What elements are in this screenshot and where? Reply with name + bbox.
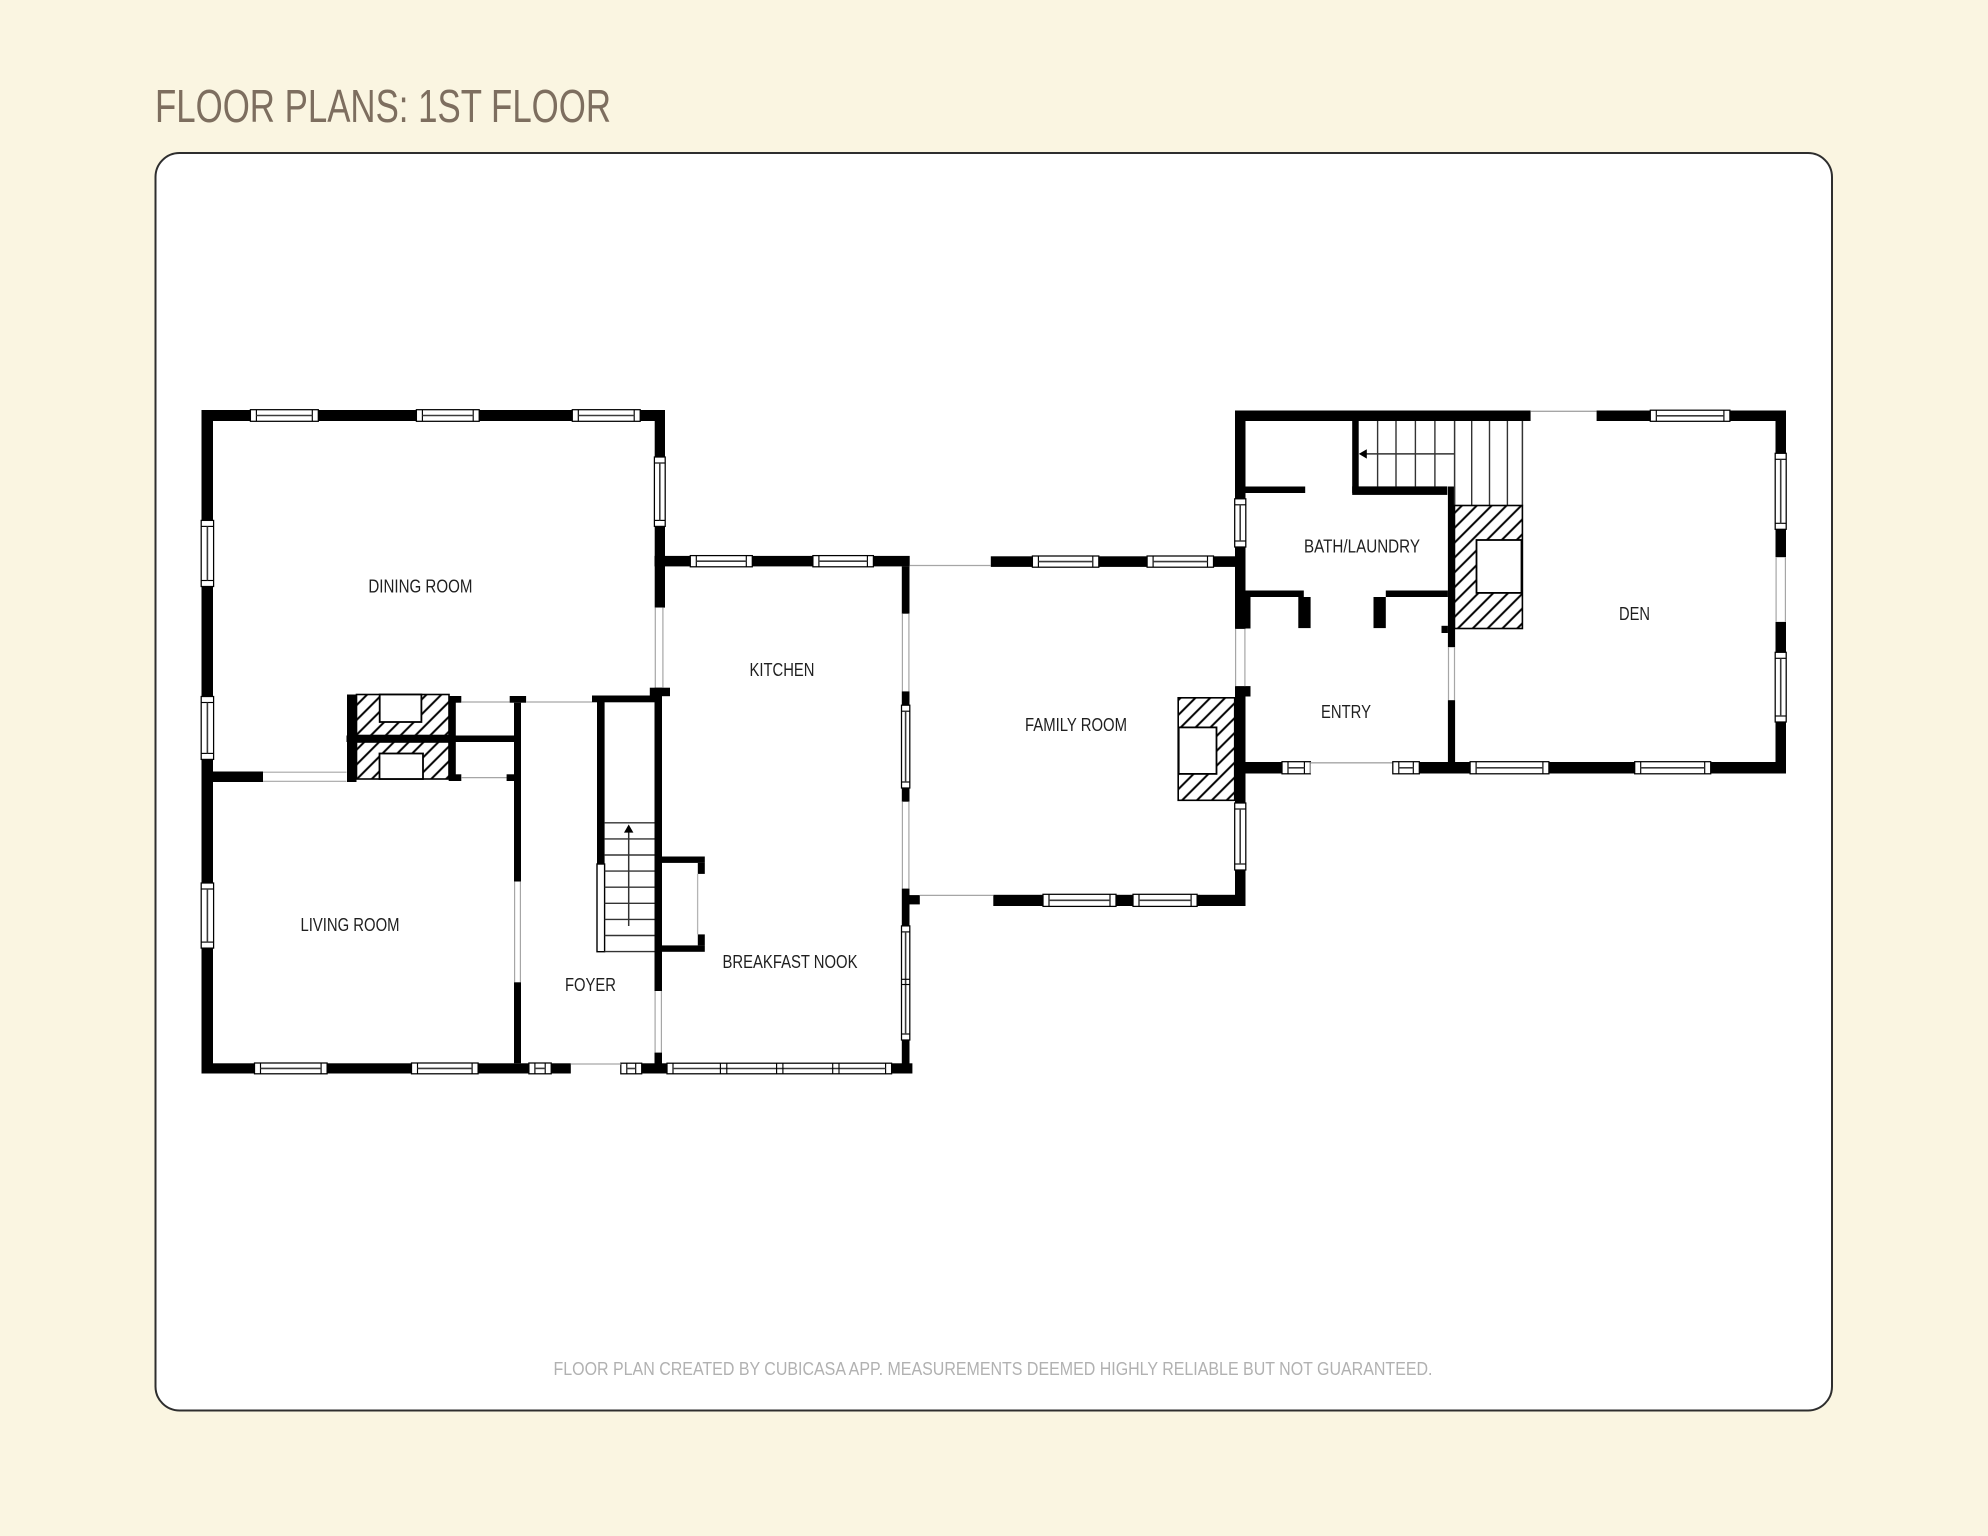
svg-text:BATH/LAUNDRY: BATH/LAUNDRY [1304,537,1420,557]
svg-text:FLOOR PLANS: 1ST FLOOR: FLOOR PLANS: 1ST FLOOR [155,80,611,132]
svg-text:DINING ROOM: DINING ROOM [368,576,472,596]
svg-text:DEN: DEN [1619,604,1650,624]
svg-text:ENTRY: ENTRY [1321,702,1371,722]
svg-text:FLOOR PLAN CREATED BY CUBICASA: FLOOR PLAN CREATED BY CUBICASA APP. MEAS… [554,1359,1433,1379]
svg-text:FOYER: FOYER [565,975,616,995]
svg-text:LIVING ROOM: LIVING ROOM [301,915,400,935]
svg-text:BREAKFAST NOOK: BREAKFAST NOOK [723,952,858,972]
svg-text:KITCHEN: KITCHEN [750,660,815,680]
svg-text:FAMILY ROOM: FAMILY ROOM [1025,715,1127,735]
